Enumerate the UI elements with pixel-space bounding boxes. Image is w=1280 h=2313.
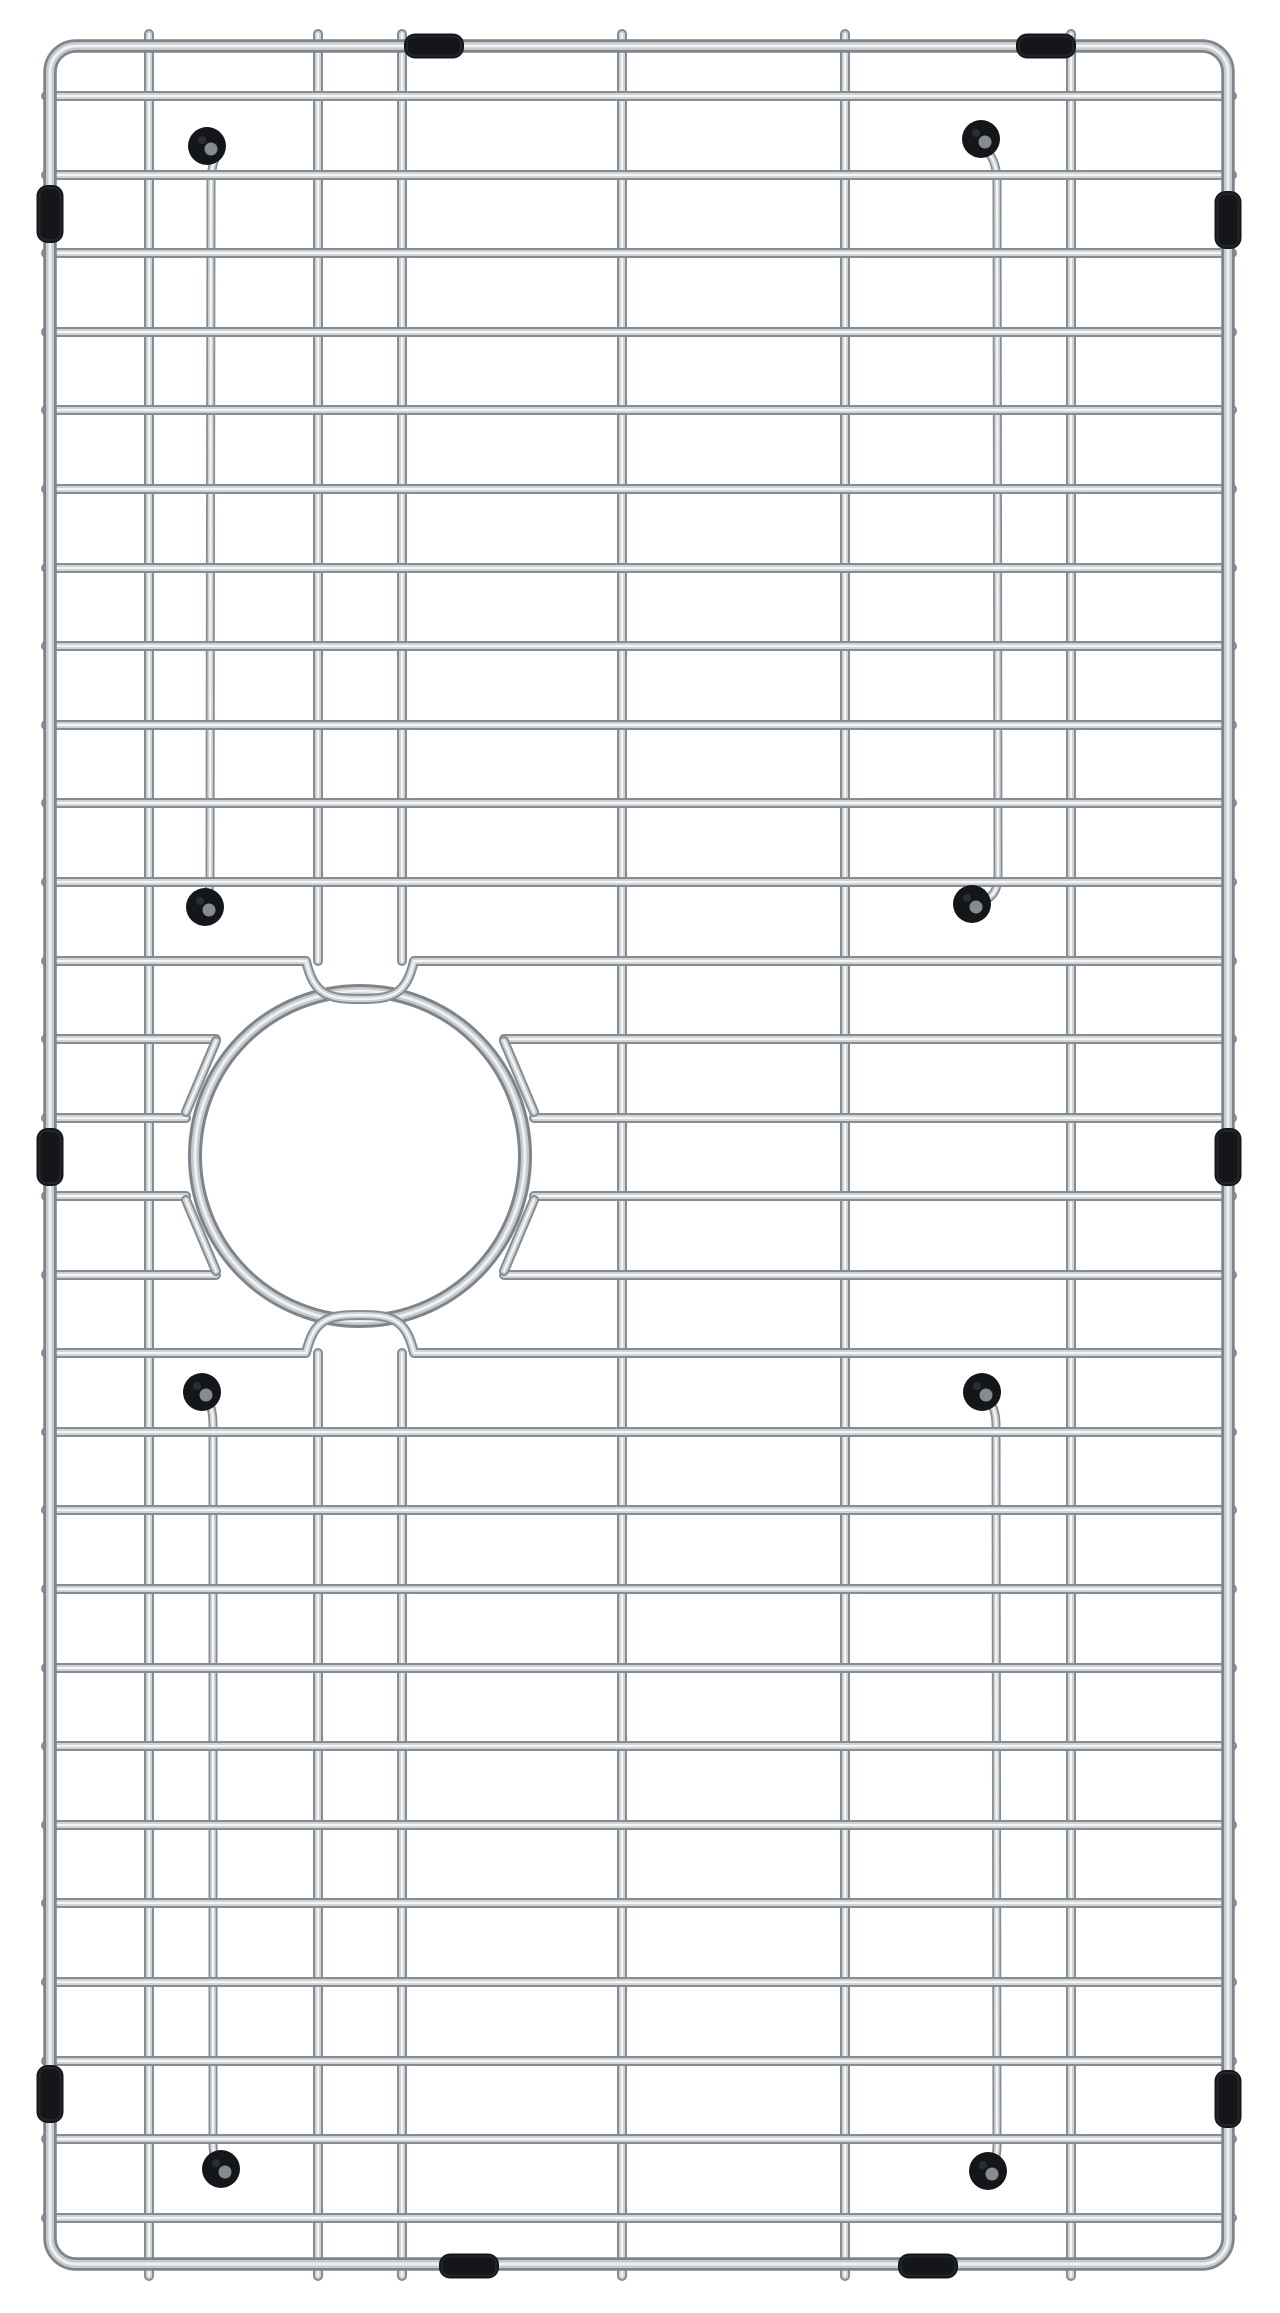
product-image-page [0,0,1280,2313]
rubber-bumper [37,1128,64,1186]
rubber-bumper [1215,2070,1242,2128]
foot-rubber-cap [963,1373,1001,1411]
sink-grid-svg [0,0,1280,2313]
rubber-bumper [37,2065,64,2123]
rubber-bumper [898,2254,958,2279]
sink-grid-product-photo [0,0,1280,2313]
foot-rubber-cap [953,885,991,923]
foot-rubber-cap [183,1373,221,1411]
foot-rubber-cap [202,2150,240,2188]
foot-rubber-cap [962,120,1000,158]
rubber-bumper [1215,191,1242,249]
rubber-bumper [1215,1128,1242,1186]
foot-rubber-cap [188,127,226,165]
rubber-bumper [439,2254,499,2279]
foot-rubber-cap [186,888,224,926]
rubber-bumper [1016,34,1076,59]
rubber-bumper [404,34,464,59]
rubber-bumper [37,185,64,243]
foot-rubber-cap [969,2152,1007,2190]
